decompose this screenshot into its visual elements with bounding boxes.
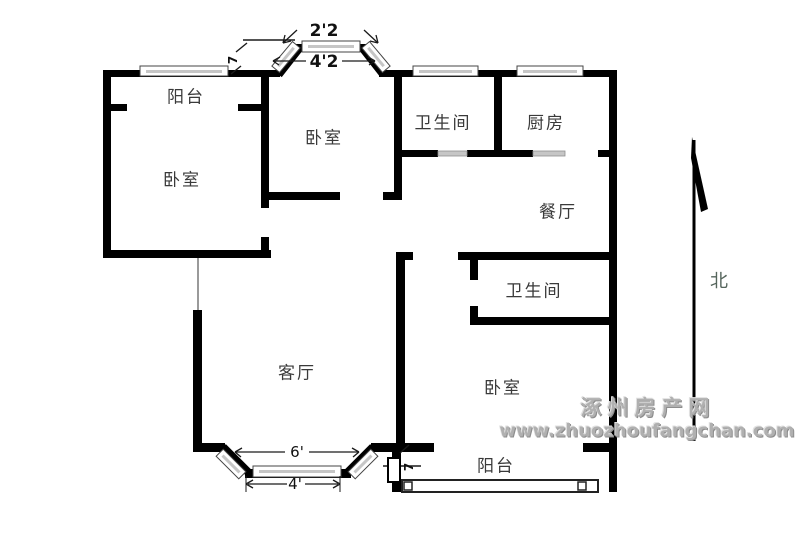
room-label-dining: 餐厅	[539, 198, 577, 223]
watermark-site-url: www.zhuozhoufangchan.com	[499, 421, 794, 442]
room-label-bedroom-left: 卧室	[163, 166, 201, 191]
dimension-bay-top-inner: 4'2	[310, 52, 339, 72]
dimension-bay-top-outer: 2'2	[310, 21, 339, 41]
dimension-door-bottom: 7	[402, 463, 416, 471]
window-balcony-bottom	[402, 480, 598, 492]
room-label-balcony-top: 阳台	[167, 83, 205, 108]
room-label-bathroom-mid: 卫生间	[506, 277, 563, 302]
room-label-living: 客厅	[278, 359, 316, 384]
door-leaf-balcony-bottom	[388, 458, 400, 482]
door-sill-bathroom-top	[438, 151, 467, 156]
room-label-bathroom-top: 卫生间	[415, 109, 472, 134]
window-kitchen	[517, 66, 583, 76]
window-bay-top	[302, 41, 360, 52]
north-label: 北	[710, 267, 728, 293]
watermark-site-name: 涿州房产网	[581, 392, 716, 422]
floorplan-page: 阳台 卧室 卧室 卫生间 厨房 餐厅 卫生间 客厅 卧室 阳台 2'2 4'2 …	[0, 0, 800, 537]
window-bathroom-top	[413, 66, 478, 76]
room-label-bedroom-top: 卧室	[305, 124, 343, 149]
dimension-bay-bottom-outer: 6'	[290, 443, 304, 461]
door-sill-kitchen	[533, 151, 565, 156]
dimension-door-top: 7	[226, 56, 240, 64]
window-balcony-top	[140, 66, 228, 76]
room-label-bedroom-right: 卧室	[484, 374, 522, 399]
living-open-boundary-line	[197, 258, 199, 310]
floorplan-drawing	[0, 0, 800, 537]
dimension-bay-bottom-inner: 4'	[288, 475, 302, 493]
room-label-kitchen: 厨房	[527, 109, 565, 134]
dimension-lines	[231, 30, 421, 492]
room-label-balcony-bottom: 阳台	[477, 452, 515, 477]
